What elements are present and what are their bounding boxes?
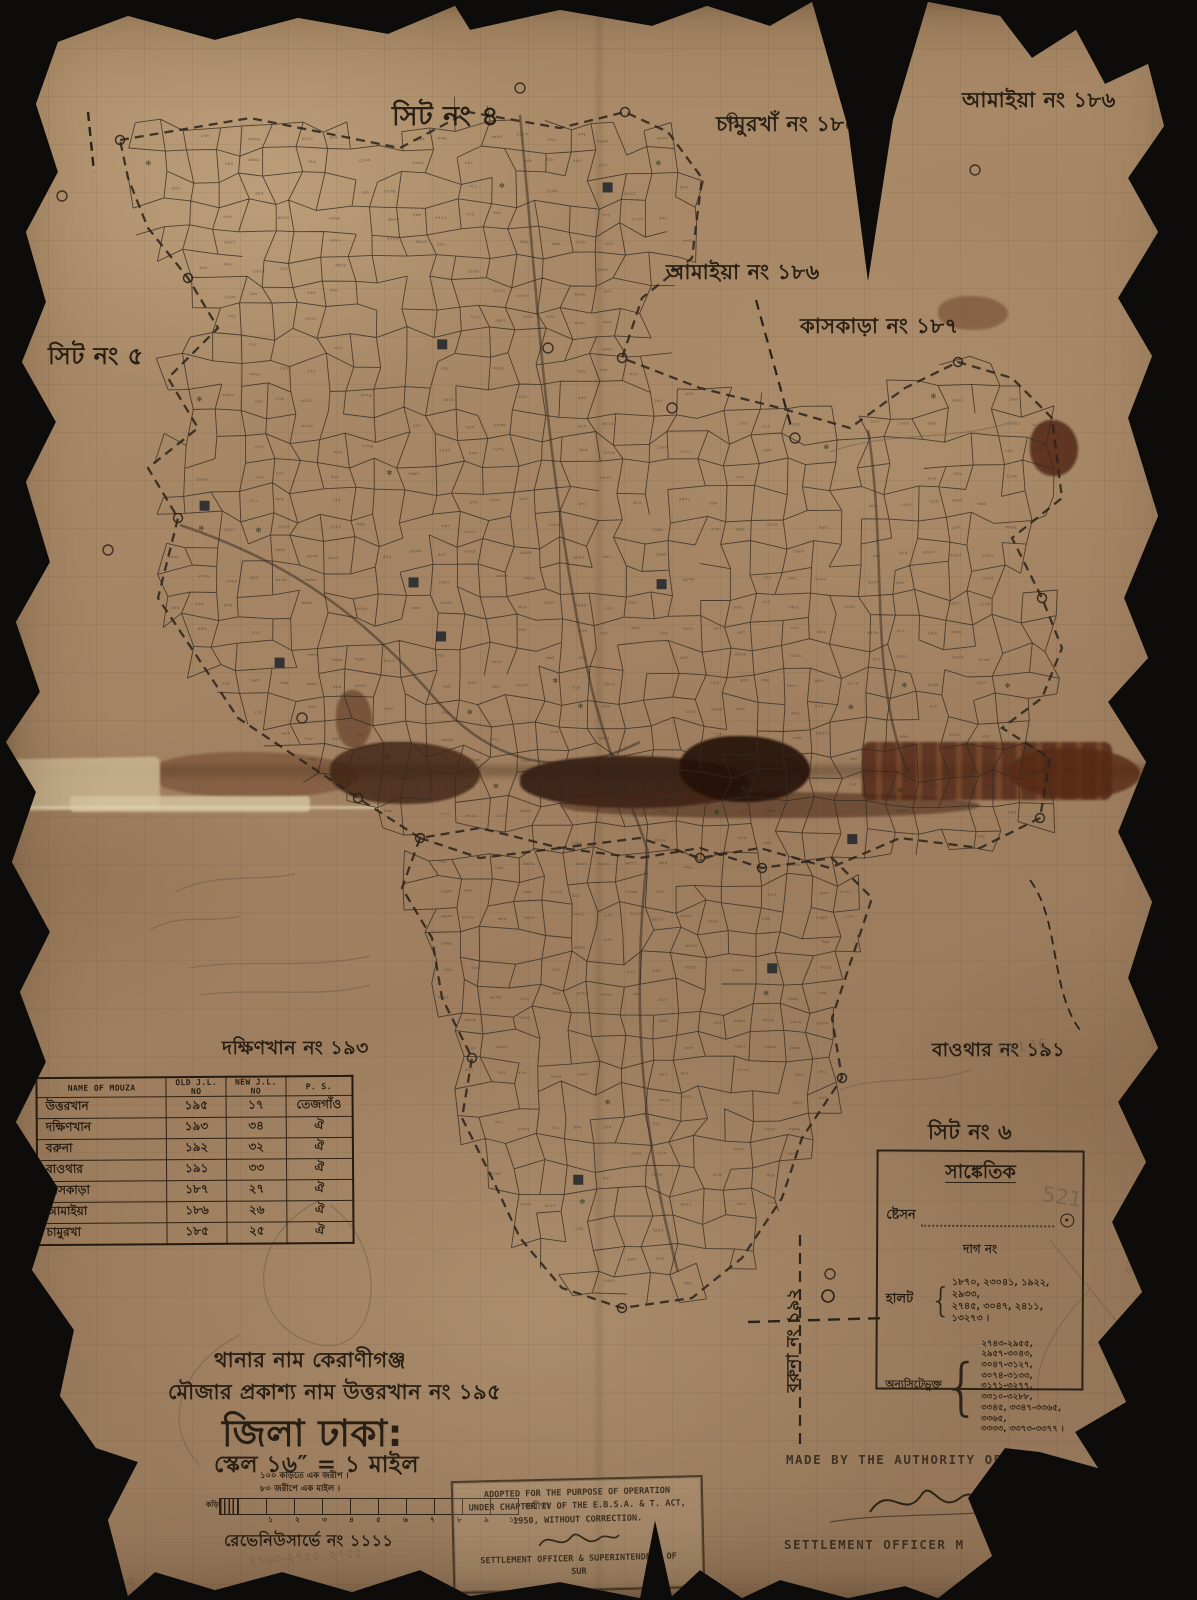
svg-text:৩৪৬: ৩৪৬ [684, 866, 693, 871]
svg-text:৭৫৪: ৭৫৪ [976, 834, 985, 839]
svg-text:৯১৯: ৯১৯ [899, 551, 908, 556]
svg-text:৭৯৬৯: ৭৯৬৯ [441, 942, 453, 947]
svg-text:৪৬৪৫: ৪৬৪৫ [301, 601, 313, 606]
svg-text:৭৭৪: ৭৭৪ [601, 214, 610, 219]
svg-text:১৯০: ১৯০ [849, 757, 858, 762]
svg-text:১৪৫৭: ১৪৫৭ [438, 581, 450, 586]
svg-text:৫৬৬২: ৫৬৬২ [306, 682, 318, 687]
svg-text:৩৬১: ৩৬১ [224, 262, 233, 267]
svg-text:৫৮২: ৫৮২ [605, 607, 614, 612]
svg-text:৭৬৯০: ৭৬৯০ [408, 472, 420, 477]
svg-text:৭৬৭: ৭৬৭ [493, 211, 502, 216]
svg-text:১৫৩০: ১৫৩০ [522, 315, 534, 320]
svg-text:৪৯১৯: ৪৯১৯ [464, 1018, 476, 1023]
svg-text:২৩১: ২৩১ [227, 315, 236, 320]
svg-text:২১৩৪: ২১৩৪ [979, 603, 991, 608]
ps: ঐ [286, 1221, 353, 1243]
svg-text:৬৭৬২: ৬৭৬২ [412, 161, 424, 166]
svg-text:৫৪১: ৫৪১ [465, 161, 474, 166]
svg-text:১১৪: ১১৪ [254, 711, 263, 716]
new-jl: ২৭ [227, 1180, 287, 1201]
svg-text:✻: ✻ [578, 702, 584, 710]
svg-text:৪৭৫: ৪৭৫ [872, 657, 881, 662]
svg-text:৮৯৭১: ৮৯৭১ [280, 366, 292, 371]
svg-text:২৬২৩: ২৬২৩ [577, 1072, 589, 1077]
svg-text:৮৬৫: ৮৬৫ [442, 684, 451, 689]
old-jl: ১৮৭ [167, 1180, 227, 1201]
svg-text:৪৯০১: ৪৯০১ [679, 497, 691, 502]
svg-text:১৬৬৩: ১৬৬৩ [440, 890, 452, 895]
baruna-vertical-label: বরুনা নং ১৯২ [780, 1288, 808, 1393]
svg-text:✻: ✻ [605, 1099, 611, 1107]
svg-text:০৩৩: ০৩৩ [411, 606, 420, 611]
tick: ৬ [403, 1515, 408, 1527]
new-jl: ৩২ [226, 1138, 286, 1159]
svg-text:৬৬৯৯: ৬৬৯৯ [574, 945, 586, 950]
svg-text:৯১২: ৯১২ [572, 894, 581, 899]
table-row: আমাইয়া১৮৬২৬ঐ [37, 1200, 353, 1223]
svg-text:৩১৪০: ৩১৪০ [843, 605, 855, 610]
ps: ঐ [286, 1137, 353, 1158]
svg-text:১৯৪: ১৯৪ [495, 866, 504, 871]
svg-text:৪৭০৬: ৪৭০৬ [275, 578, 287, 583]
svg-text:৪৫০: ৪৫০ [438, 553, 447, 558]
col-ps: P. S. [285, 1076, 352, 1096]
svg-text:৮৩০২: ৮৩০২ [982, 554, 994, 559]
svg-text:৯৪৭৭: ৯৪৭৭ [816, 732, 828, 737]
svg-text:৩০৪৭: ৩০৪৭ [574, 322, 586, 327]
svg-text:৯৮৪: ৯৮৪ [817, 630, 826, 635]
svg-text:০২৪৪: ০২৪৪ [788, 423, 800, 428]
svg-text:০৪৬৯: ০৪৬৯ [626, 890, 638, 895]
svg-text:৬৭২: ৬৭২ [603, 555, 612, 560]
scale-left-label: কড়ি [206, 1500, 219, 1512]
svg-text:৪৫০: ৪৫০ [819, 1096, 828, 1101]
svg-text:৩১৮: ৩১৮ [766, 1174, 775, 1179]
svg-text:০৮২২: ০৮২২ [815, 578, 827, 583]
svg-text:৬৯৯: ৬৯৯ [736, 527, 745, 532]
svg-text:০৫০: ০৫০ [787, 1152, 796, 1157]
svg-text:৭৯৪৪: ৭৯৪৪ [652, 1229, 664, 1234]
svg-text:৫৩৩: ৫৩৩ [546, 315, 555, 320]
svg-text:৯১৮: ৯১৮ [331, 475, 340, 480]
new-jl: ২৬ [227, 1201, 287, 1222]
svg-text:৯৪২: ৯৪২ [250, 576, 259, 581]
svg-text:২৫০: ২৫০ [276, 471, 285, 476]
svg-text:৬১৫৬: ৬১৫৬ [301, 424, 313, 429]
svg-text:৮৬৪: ৮৬৪ [818, 991, 827, 996]
svg-text:✻: ✻ [196, 396, 202, 404]
svg-text:৩৩৭: ৩৩৭ [442, 711, 451, 716]
svg-text:৪৫৬: ৪৫৬ [523, 890, 532, 895]
svg-text:৩৫৬২: ৩৫৬২ [249, 372, 261, 377]
svg-text:৩৯২: ৩৯২ [552, 991, 561, 996]
svg-text:০৩৮: ০৩৮ [575, 1227, 584, 1232]
svg-text:১৮১৫: ১৮১৫ [847, 681, 859, 686]
svg-text:৮৭৭২: ৮৭৭২ [551, 891, 563, 896]
svg-text:৮৩৭: ৮৩৭ [604, 938, 613, 943]
svg-text:৩২৩৩: ৩২৩৩ [278, 525, 290, 530]
svg-text:৮৯৭৪: ৮৯৭৪ [253, 269, 265, 274]
svg-text:৭৯৮৭: ৭৯৮৭ [791, 1101, 803, 1106]
svg-text:৬৪৫: ৬৪৫ [255, 192, 264, 197]
svg-text:৭৮২: ৭৮২ [255, 475, 264, 480]
halot-label: হালট [886, 1290, 930, 1311]
svg-text:৭১২: ৭১২ [252, 631, 261, 636]
svg-text:৪৬৯৫: ৪৬৯৫ [305, 578, 317, 583]
svg-text:১৫৮: ১৫৮ [361, 191, 370, 196]
svg-text:০৭২: ০৭২ [547, 138, 556, 143]
svg-text:২৮৯৪: ২৮৯৪ [927, 683, 939, 688]
svg-text:৯৩৭: ৯৩৭ [737, 1202, 746, 1207]
svg-text:২৬৫৬: ২৬৫৬ [574, 292, 586, 297]
svg-text:২২০০: ২২০০ [330, 525, 342, 530]
svg-text:১৪০: ১৪০ [468, 1046, 477, 1051]
svg-text:৩৩১৪: ৩৩১৪ [949, 733, 961, 738]
svg-text:৫৪২: ৫৪২ [872, 554, 881, 559]
svg-text:০০৬৭: ০০৬৭ [659, 1099, 671, 1104]
svg-text:৫৫৮৩: ৫৫৮৩ [922, 550, 934, 555]
svg-text:২৬৩৭: ২৬৩৭ [550, 1075, 562, 1080]
svg-text:৬১৬১: ৬১৬১ [790, 654, 802, 659]
svg-text:৫২২: ৫২২ [465, 1068, 474, 1073]
svg-text:১১০: ১১০ [441, 812, 450, 817]
stain [336, 690, 372, 748]
svg-text:৩৩৯৪: ৩৩৯৪ [1005, 526, 1017, 531]
svg-text:১৫৪: ১৫৪ [332, 499, 341, 504]
svg-text:৩০৮: ৩০৮ [545, 158, 554, 163]
svg-text:০২২: ০২২ [652, 1122, 661, 1127]
svg-text:৮৬৩: ৮৬৩ [250, 679, 259, 684]
tick: ৩ [322, 1515, 327, 1527]
svg-text:৮৫০: ৮৫০ [686, 710, 695, 715]
svg-text:৬৮৫: ৬৮৫ [659, 861, 668, 866]
svg-text:০২২২: ০২২২ [763, 1019, 775, 1024]
svg-text:৮৬৬: ৮৬৬ [793, 736, 802, 741]
svg-text:৫০৮: ৫০৮ [788, 576, 797, 581]
svg-text:৪১৮: ৪১৮ [929, 705, 938, 710]
svg-text:৯৬৪: ৯৬৪ [552, 242, 561, 247]
svg-text:৯৮৬: ৯৮৬ [579, 448, 588, 453]
svg-text:৩৭১: ৩৭১ [818, 1070, 827, 1075]
svg-text:৮৬৭: ৮৬৭ [201, 134, 210, 139]
svg-text:০০৮: ০০৮ [329, 288, 338, 293]
old-jl: ১৯১ [167, 1159, 227, 1180]
svg-text:২৩০: ২৩০ [413, 424, 422, 429]
svg-text:৫০৫: ৫০৫ [738, 836, 747, 841]
svg-text:৭৬৩: ৭৬৩ [519, 497, 528, 502]
svg-text:০০৭: ০০৭ [437, 243, 446, 248]
svg-text:৭২০০: ৭২০০ [546, 190, 558, 195]
svg-text:৬৮৩৫: ৬৮৩৫ [490, 995, 502, 1000]
svg-text:৪৮৪৫: ৪৮৪৫ [468, 270, 480, 275]
svg-text:২৯৮: ২৯৮ [441, 366, 450, 371]
svg-text:৪০০: ৪০০ [469, 451, 478, 456]
svg-text:৫১৮: ৫১৮ [762, 425, 771, 430]
scale-segment [406, 1499, 434, 1514]
svg-text:২৯০৭: ২৯০৭ [544, 601, 556, 606]
other-line5: ৩৩৩৩, ৩৩৭৩-৩৩৭৭ । [981, 1424, 1064, 1434]
svg-text:৫৯৭৪: ৫৯৭৪ [604, 682, 616, 687]
svg-text:৫২৫: ৫২৫ [518, 395, 527, 400]
svg-text:৯৬৭: ৯৬৭ [1010, 398, 1019, 403]
svg-text:১৪৫: ১৪৫ [659, 631, 668, 636]
svg-text:৮৭৩১: ৮৭৩১ [682, 239, 694, 244]
svg-text:৫৩৩৩: ৫৩৩৩ [789, 1046, 801, 1051]
tear-line [0, 806, 380, 809]
svg-text:৫৯১২: ৫৯১২ [327, 556, 339, 561]
svg-text:২০৭৬: ২০৭৬ [360, 394, 372, 399]
svg-text:৯৯৮: ৯৯৮ [199, 266, 208, 271]
svg-text:১২৯: ১২৯ [221, 682, 230, 687]
col-old-jl-no: OLD J.L. NO [166, 1077, 226, 1097]
dakshinkhan-label: দক্ষিণখান নং ১৯৩ [222, 1034, 369, 1066]
svg-text:৫৭৩৯: ৫৭৩৯ [384, 189, 396, 194]
svg-text:৯৭৭: ৯৭৭ [815, 705, 824, 710]
svg-text:৮২৭: ৮২৭ [604, 913, 613, 918]
sheet-6-label: সিট নং ৬ [928, 1116, 1012, 1151]
stain [150, 752, 360, 798]
svg-text:২৯৪: ২৯৪ [1008, 811, 1017, 816]
table-row: চামুরখা১৮৫২৫ঐ [37, 1221, 353, 1245]
svg-text:১৫৩: ১৫৩ [951, 525, 960, 530]
tick: ৫ [376, 1515, 381, 1527]
table-row: বরুনা১৯২৩২ঐ [37, 1137, 353, 1160]
svg-text:৭৯৮২: ৭৯৮২ [793, 549, 805, 554]
ps: ঐ [286, 1116, 353, 1137]
svg-text:৬১৬১: ৬১৬১ [681, 914, 693, 919]
svg-text:২১৫: ২১৫ [848, 783, 857, 788]
svg-text:৮৯৫৯: ৮৯৫৯ [765, 1045, 777, 1050]
svg-text:০৯৯: ০৯৯ [601, 705, 610, 710]
svg-text:৬৭১০: ৬৭১০ [302, 137, 314, 142]
svg-text:৬৫৬৩: ৬৫৬৩ [496, 1045, 508, 1050]
svg-text:৬২৬: ৬২৬ [633, 501, 642, 506]
col-name-of-mouza: NAME OF MOUZA [36, 1077, 166, 1097]
svg-text:৩৭৩৮: ৩৭৩৮ [168, 556, 180, 561]
svg-text:৮৬৪: ৮৬৪ [656, 1257, 665, 1262]
legend-station-row: ষ্টেসন [886, 1206, 1074, 1228]
svg-text:৬৪২৩: ৬৪২৩ [576, 862, 588, 867]
svg-text:৬৩৭: ৬৩৭ [659, 1019, 668, 1024]
svg-text:৩৩১০: ৩৩১০ [766, 523, 778, 528]
svg-text:৫৪১৬: ৫৪১৬ [654, 838, 666, 843]
svg-text:১৯৪১: ১৯৪১ [1009, 422, 1021, 427]
svg-text:৪২৩৩: ৪২৩৩ [410, 550, 422, 555]
svg-text:৫৭১৩: ৫৭১৩ [387, 237, 399, 242]
svg-text:৯০৪৩: ৯০৪৩ [278, 216, 290, 221]
svg-text:৮২০২: ৮২০২ [494, 289, 506, 294]
pencil-range-note-2: ৩২৭৭ - ৩২৭৩ [60, 1573, 135, 1597]
table-row: বাওথার১৯১৩৩ঐ [37, 1158, 353, 1181]
new-jl: ২৫ [227, 1222, 287, 1244]
svg-text:৭৬৭২: ৭৬৭২ [307, 653, 319, 658]
svg-text:১৬৪৮: ১৬৪৮ [274, 548, 286, 553]
svg-text:০৩৮৬: ০৩৮৬ [523, 576, 535, 581]
svg-text:০৮৮: ০৮৮ [444, 968, 453, 973]
svg-text:২২২: ২২২ [763, 576, 772, 581]
svg-text:২৯০৫: ২৯০৫ [601, 348, 613, 353]
svg-text:৫৪৯৪: ৫৪৯৪ [734, 1019, 746, 1024]
stain [330, 742, 480, 804]
svg-text:৭৫৮৭: ৭৫৮৭ [948, 601, 960, 606]
svg-text:০৯৮: ০৯৮ [761, 679, 770, 684]
svg-text:৯৫৭: ৯৫৭ [659, 1072, 668, 1077]
svg-text:৩০০১: ৩০০১ [681, 1095, 693, 1100]
svg-text:৭৭২৪: ৭৭২৪ [601, 993, 613, 998]
svg-text:০৯৯: ০৯৯ [683, 1281, 692, 1286]
svg-text:২৪৬: ২৪৬ [249, 292, 258, 297]
svg-text:৬৭৮: ৬৭৮ [740, 678, 749, 683]
brace-glyph: { [930, 1283, 952, 1317]
svg-text:৫৩২: ৫৩২ [685, 392, 694, 397]
svg-text:৪৫৯: ৪৫৯ [577, 370, 586, 375]
svg-text:৭১৫: ৭১৫ [471, 315, 480, 320]
svg-text:৭৮৩২: ৭৮৩২ [519, 1016, 531, 1021]
svg-text:৭৩৫৩: ৭৩৫৩ [490, 1172, 502, 1177]
svg-text:৮৯৭৬: ৮৯৭৬ [651, 1173, 663, 1178]
other-sheet-label: অন্যসিটেভুক্ত [885, 1378, 941, 1395]
svg-text:৫৯৭: ৫৯৭ [223, 215, 232, 220]
svg-text:৩৮০: ৩৮০ [603, 320, 612, 325]
svg-text:৯০১৬: ৯০১৬ [356, 607, 368, 612]
svg-text:৮৭৫১: ৮৭৫১ [840, 890, 852, 895]
svg-text:৯৯৭০: ৯৯৭০ [817, 1021, 829, 1026]
svg-text:৪৫৯: ৪৫৯ [631, 626, 640, 631]
ps: ঐ [286, 1179, 353, 1200]
svg-text:৪৪৬: ৪৪৬ [576, 240, 585, 245]
svg-text:৫৫৩৩: ৫৫৩৩ [494, 423, 506, 428]
svg-text:৫৫২: ৫৫২ [521, 997, 530, 1002]
svg-text:২৬৪: ২৬৪ [819, 526, 828, 531]
svg-text:৪৮০: ৪৮০ [471, 966, 480, 971]
svg-text:৯৬২৩: ৯৬২৩ [388, 217, 400, 222]
svg-text:৩৩৮: ৩৩৮ [656, 890, 665, 895]
svg-text:১৬১০: ১৬১০ [524, 916, 536, 921]
svg-text:৭৩৭৬: ৭৩৭৬ [362, 444, 374, 449]
table-header-row: NAME OF MOUZA OLD J.L. NO NEW J.L. NO P.… [36, 1076, 352, 1098]
svg-text:৬৬৯: ৬৬৯ [977, 502, 986, 507]
svg-text:২১২: ২১২ [627, 970, 636, 975]
new-jl: ১৭ [226, 1096, 286, 1117]
svg-text:✻: ✻ [493, 782, 499, 790]
svg-text:৫৪৩: ৫৪৩ [578, 396, 587, 401]
svg-text:৩৪৩: ৩৪৩ [633, 992, 642, 997]
svg-text:৭২৪: ৭২৪ [466, 213, 475, 218]
svg-text:✻: ✻ [848, 703, 854, 711]
svg-text:০৬৬: ০৬৬ [384, 809, 393, 814]
svg-text:৫৫৯৩: ৫৫৯৩ [354, 684, 366, 689]
svg-text:৪০১৬: ৪০১৬ [462, 915, 474, 920]
svg-text:০৯৯৭: ০৯৯৭ [354, 658, 366, 663]
svg-text:২৪৩: ২৪৩ [465, 425, 474, 430]
svg-text:৩৬৮৮: ৩৬৮৮ [788, 997, 800, 1002]
svg-text:২৮৮: ২৮৮ [603, 289, 612, 294]
svg-text:৩৪৯: ৩৪৯ [356, 523, 365, 528]
svg-text:১৩৮৪: ১৩৮৪ [787, 605, 799, 610]
old-jl: ১৮৬ [167, 1201, 227, 1222]
tick: ৭ [430, 1515, 435, 1527]
svg-text:২২০৯: ২২০৯ [788, 863, 800, 868]
svg-text:৯১৮৩: ৯১৮৩ [516, 132, 528, 137]
sheet-5-label: সিট নং ৫ [48, 338, 144, 378]
svg-text:৩৯২: ৩৯২ [491, 685, 500, 690]
sheet-4-label: সিট নং ৪ [392, 96, 499, 141]
svg-text:২৬৭: ২৬৭ [737, 631, 746, 636]
amaiya-mid-label: আমাইয়া নং ১৮৬ [666, 256, 820, 291]
svg-text:৫৭০: ৫৭০ [195, 603, 204, 608]
svg-text:৬১১৩: ৬১১৩ [301, 399, 313, 404]
svg-text:✻: ✻ [931, 393, 937, 401]
station-symbol-icon [1060, 1213, 1074, 1227]
svg-text:৪৫৯৩: ৪৫৯৩ [950, 554, 962, 559]
ps: ঐ [286, 1200, 353, 1221]
svg-text:০৩৮০: ০৩৮০ [222, 393, 234, 398]
svg-text:২৮১৩: ২৮১৩ [544, 1204, 556, 1209]
svg-text:২৯৮৭: ২৯৮৭ [224, 240, 236, 245]
pencil-side-number: ৩২৯৭ [1119, 1240, 1147, 1277]
svg-text:৯৯১৫: ৯৯১৫ [416, 240, 428, 245]
scale-hatch-segment [220, 1499, 238, 1514]
svg-text:০৯৭১: ০৯৭১ [786, 684, 798, 689]
other-line1: ২৭৪৩-২৯৫৫, ২৯৫৭-৩০৪৩, [981, 1339, 1033, 1360]
svg-text:৭১০১: ৭১০১ [493, 447, 505, 452]
thana-name-line: থানার নাম কেরাণীগঞ্জ [214, 1344, 406, 1379]
svg-text:৪০২৬: ৪০২৬ [576, 992, 588, 997]
svg-text:৭৮০: ৭৮০ [896, 581, 905, 586]
svg-text:৭১০৭: ৭১০৭ [489, 499, 501, 504]
mouza-name: বরুনা [37, 1139, 167, 1161]
svg-text:৬৯৯২: ৬৯৯২ [573, 556, 585, 561]
svg-text:২৪৩: ২৪৩ [710, 681, 719, 686]
halot-line1: ১৮৭০, ২৩০৪১, ১৯২২, ২৯৩৩, [952, 1277, 1050, 1300]
svg-text:২৪৫: ২৪৫ [981, 735, 990, 740]
svg-text:৭৮৮: ৭৮৮ [304, 737, 313, 742]
svg-text:১৫৪: ১৫৪ [739, 422, 748, 427]
other-sheet-numbers: ২৭৪৩-২৯৫৫, ২৯৫৭-৩০৪৩, ৩০৪৭-৩১২৭, ৩০৭৪-৩১… [981, 1339, 1074, 1436]
svg-text:৩৮২: ৩৮২ [308, 160, 317, 165]
svg-text:৬৯২২: ৬৯২২ [520, 809, 532, 814]
svg-text:৬৫৭: ৬৫৭ [685, 1046, 694, 1051]
svg-text:৬৭২৯: ৬৭২৯ [464, 549, 476, 554]
svg-text:৮৩২৪: ৮৩২৪ [226, 579, 238, 584]
svg-text:৯৭২: ৯৭২ [579, 502, 588, 507]
svg-text:৫০১: ৫০১ [280, 267, 289, 272]
svg-text:০১৫: ০১৫ [248, 342, 257, 347]
new-jl: ৩৩ [227, 1159, 287, 1180]
svg-text:৯৬৩: ৯৬৩ [627, 1257, 636, 1262]
svg-text:০৪৬: ০৪৬ [413, 213, 422, 218]
svg-text:৬৪৭: ৬৪৭ [815, 679, 824, 684]
svg-text:০০৮: ০০৮ [628, 601, 637, 606]
svg-text:৬৮৯৯: ৬৮৯৯ [711, 708, 723, 713]
brace-glyph: { [942, 1356, 982, 1418]
tick: ৪ [349, 1515, 354, 1527]
svg-text:৫৩৭: ৫৩৭ [736, 475, 745, 480]
adoption-stamp: ADOPTED FOR THE PURPOSE OF OPERATION UND… [451, 1475, 706, 1594]
svg-text:৪৯০: ৪৯০ [709, 502, 718, 507]
svg-text:৫০৮: ৫০৮ [578, 133, 587, 138]
svg-text:৯৫৪৪: ৯৫৪৪ [685, 965, 697, 970]
svg-text:৯৪৬১: ৯৪৬১ [248, 158, 260, 163]
svg-text:৪২৭: ৪২৭ [713, 627, 722, 632]
svg-text:৭৬৫১: ৭৬৫১ [734, 1044, 746, 1049]
halot-line2: ২৭৪৫, ৩০৪৭, ২৪১১, ১৩২৭৩ । [952, 1301, 1044, 1324]
svg-text:৩৬৮: ৩৬৮ [821, 940, 830, 945]
new-jl: ৩৪ [226, 1117, 286, 1138]
svg-text:৪১৮: ৪১৮ [308, 705, 317, 710]
svg-text:৩১৩: ৩১৩ [605, 242, 614, 247]
